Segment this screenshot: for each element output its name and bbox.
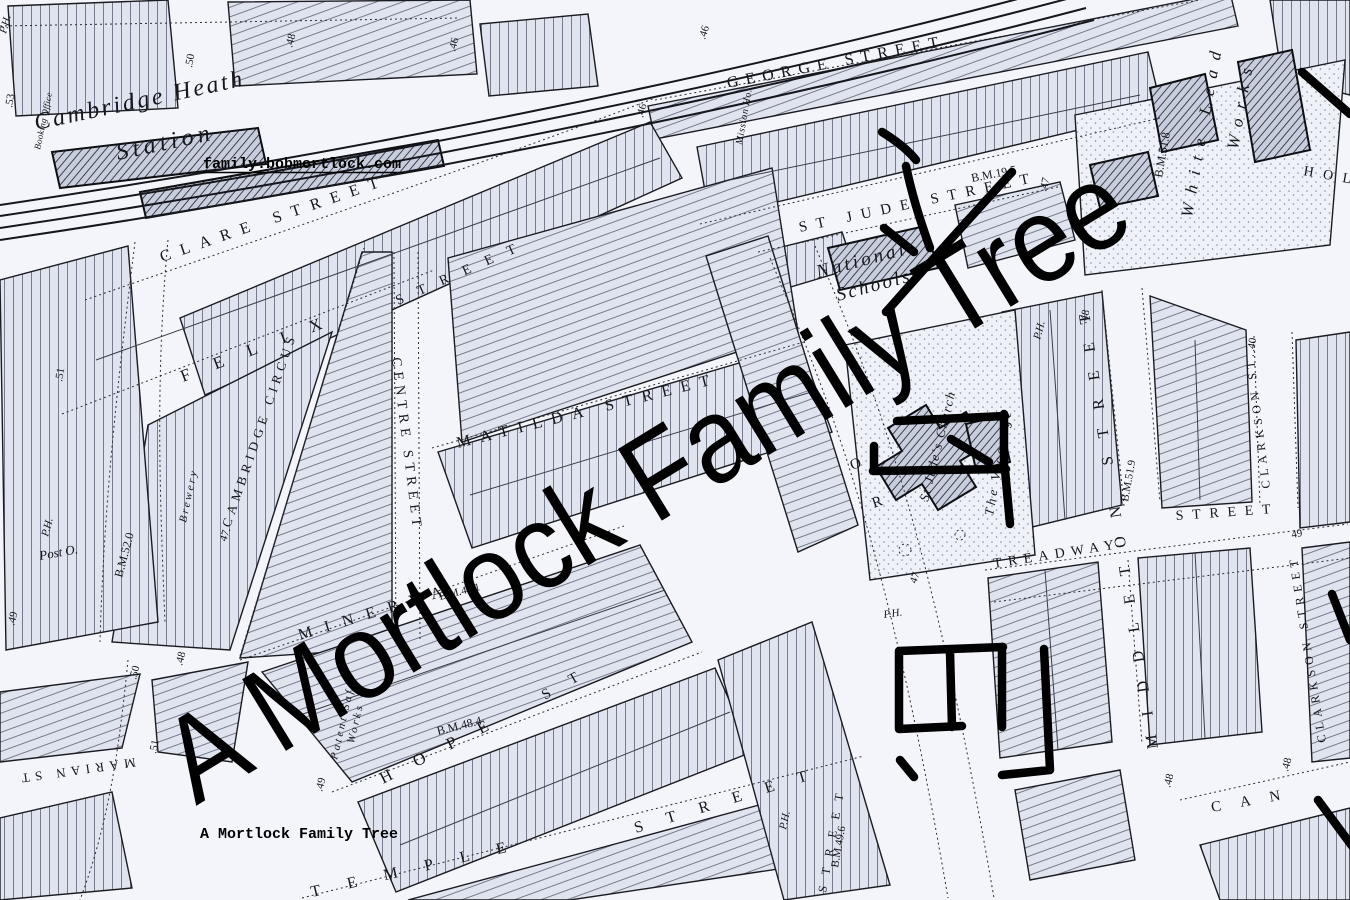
spot-height: .50: [183, 52, 197, 68]
building-block: [480, 14, 598, 96]
building-block: [1015, 770, 1135, 880]
ordnance-survey-map: GEORGE STREET ST JUDE STREET CLARE STREE…: [0, 0, 1350, 900]
building-block: [1150, 296, 1252, 508]
building-block: [228, 0, 477, 86]
building-block: [1296, 332, 1350, 528]
spot-height: .40: [1245, 336, 1259, 352]
spot-height: .53: [3, 92, 17, 108]
spot-height: .51: [53, 367, 67, 383]
caption-text: A Mortlock Family Tree: [200, 826, 398, 843]
map-page: GEORGE STREET ST JUDE STREET CLARE STREE…: [0, 0, 1350, 900]
site-url-text: family.bobmortlock.com: [203, 156, 401, 173]
